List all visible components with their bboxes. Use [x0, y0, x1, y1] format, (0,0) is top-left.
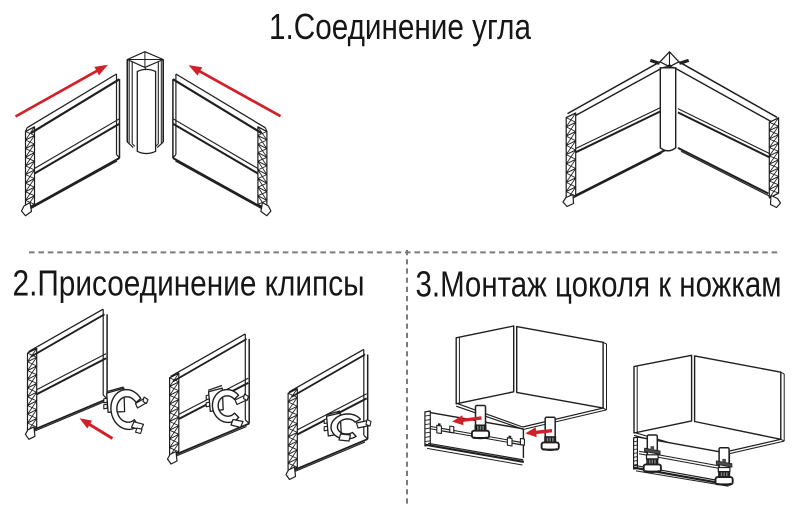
svg-text:3.Монтаж цоколя к ножкам: 3.Монтаж цоколя к ножкам [416, 264, 782, 305]
svg-text:2.Присоединение клипсы: 2.Присоединение клипсы [13, 263, 365, 304]
svg-text:1.Соединение угла: 1.Соединение угла [269, 6, 532, 47]
